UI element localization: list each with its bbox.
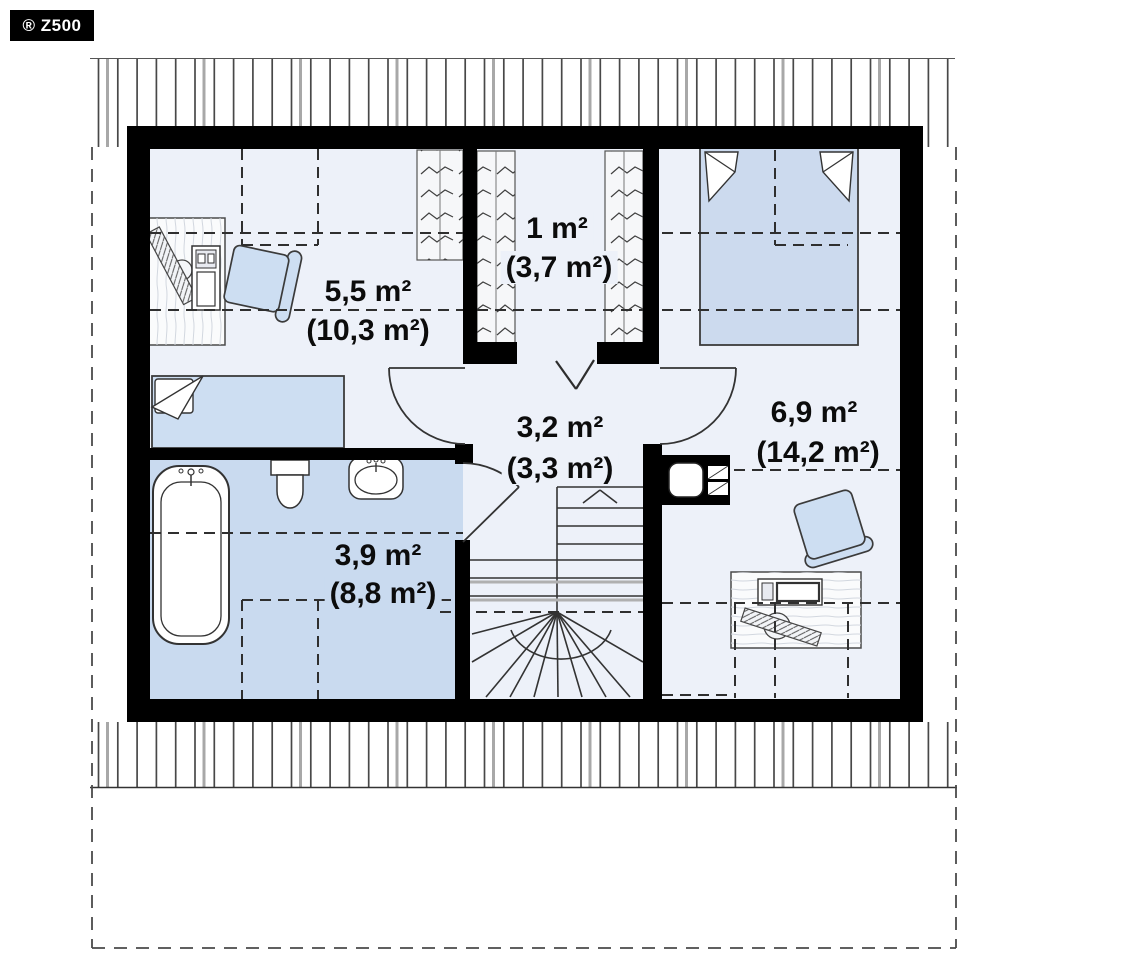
roof-hatch-bottom <box>90 722 957 788</box>
room-label-upper-left-usable: 5,5 m² <box>320 273 417 310</box>
computer-icon <box>192 246 220 310</box>
computer-icon-right <box>758 579 822 605</box>
floor-plan-page: ® Z500 5,5 m² (10,3 m²) 1 m² (3,7 m²) 3,… <box>0 0 1122 955</box>
chimney <box>650 455 730 505</box>
desk-right <box>731 572 861 648</box>
bathtub <box>153 466 229 644</box>
room-label-wardrobe-floor: (3,7 m²) <box>501 249 618 286</box>
room-label-hall-usable: 3,2 m² <box>512 409 609 446</box>
room-label-right-usable: 6,9 m² <box>766 394 863 431</box>
room-label-bathroom-floor: (8,8 m²) <box>325 575 442 612</box>
brand-badge: ® Z500 <box>10 10 94 41</box>
sink <box>349 457 403 499</box>
bed-single <box>152 376 344 448</box>
wardrobe-left-room <box>417 150 463 260</box>
room-label-bathroom-usable: 3,9 m² <box>330 537 427 574</box>
room-label-wardrobe-usable: 1 m² <box>521 210 593 247</box>
desk-left <box>146 218 225 345</box>
room-label-upper-left-floor: (10,3 m²) <box>301 312 434 349</box>
room-label-right-floor: (14,2 m²) <box>751 434 884 471</box>
room-label-hall-floor: (3,3 m²) <box>502 450 619 487</box>
bed-double <box>700 148 858 345</box>
